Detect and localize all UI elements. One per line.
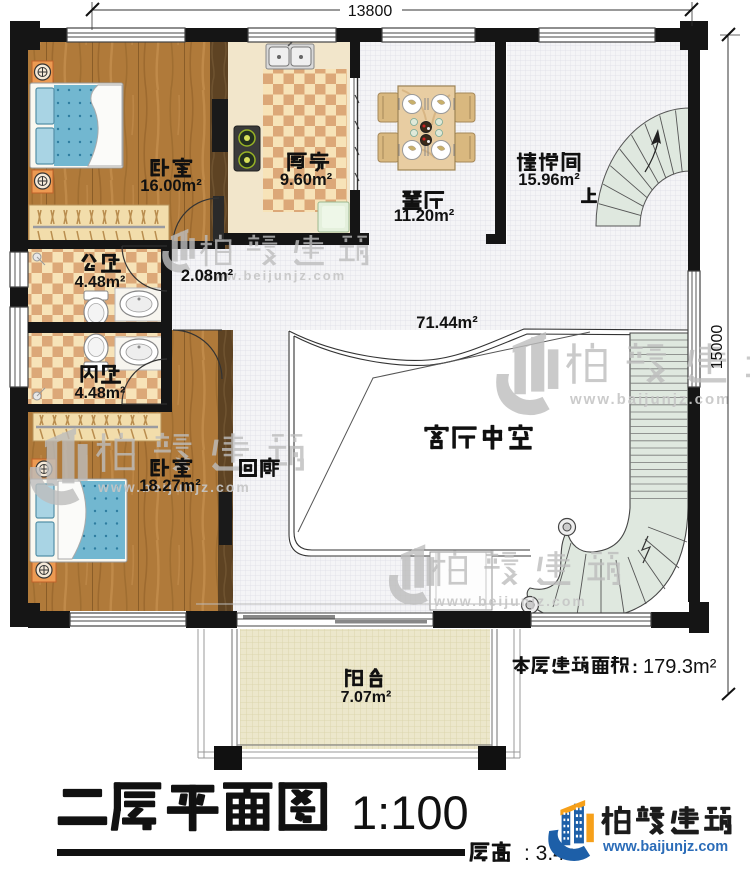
svg-text:18.27m²: 18.27m² xyxy=(139,477,201,495)
svg-text:16.00m²: 16.00m² xyxy=(140,177,202,195)
svg-text:www.baijunjz.com: www.baijunjz.com xyxy=(569,391,731,408)
svg-text:1:100: 1:100 xyxy=(351,786,469,839)
svg-text:9.60m²: 9.60m² xyxy=(280,171,333,189)
svg-text:71.44m²: 71.44m² xyxy=(416,314,478,332)
svg-text:11.20m²: 11.20m² xyxy=(394,207,455,225)
svg-text:4.48m²: 4.48m² xyxy=(75,385,126,402)
svg-text:2.08m²: 2.08m² xyxy=(181,267,234,285)
svg-text:7.07m²: 7.07m² xyxy=(341,689,392,706)
svg-text:179.3m²: 179.3m² xyxy=(643,656,717,678)
svg-text:www.baijunjz.com: www.baijunjz.com xyxy=(602,839,728,855)
svg-text:13800: 13800 xyxy=(348,3,393,20)
svg-text::: : xyxy=(632,657,638,677)
svg-text:15000: 15000 xyxy=(709,325,726,370)
svg-text:15.96m²: 15.96m² xyxy=(518,171,580,189)
svg-text:www.beijunjz.com: www.beijunjz.com xyxy=(433,593,587,609)
svg-text:4.48m²: 4.48m² xyxy=(75,274,126,291)
